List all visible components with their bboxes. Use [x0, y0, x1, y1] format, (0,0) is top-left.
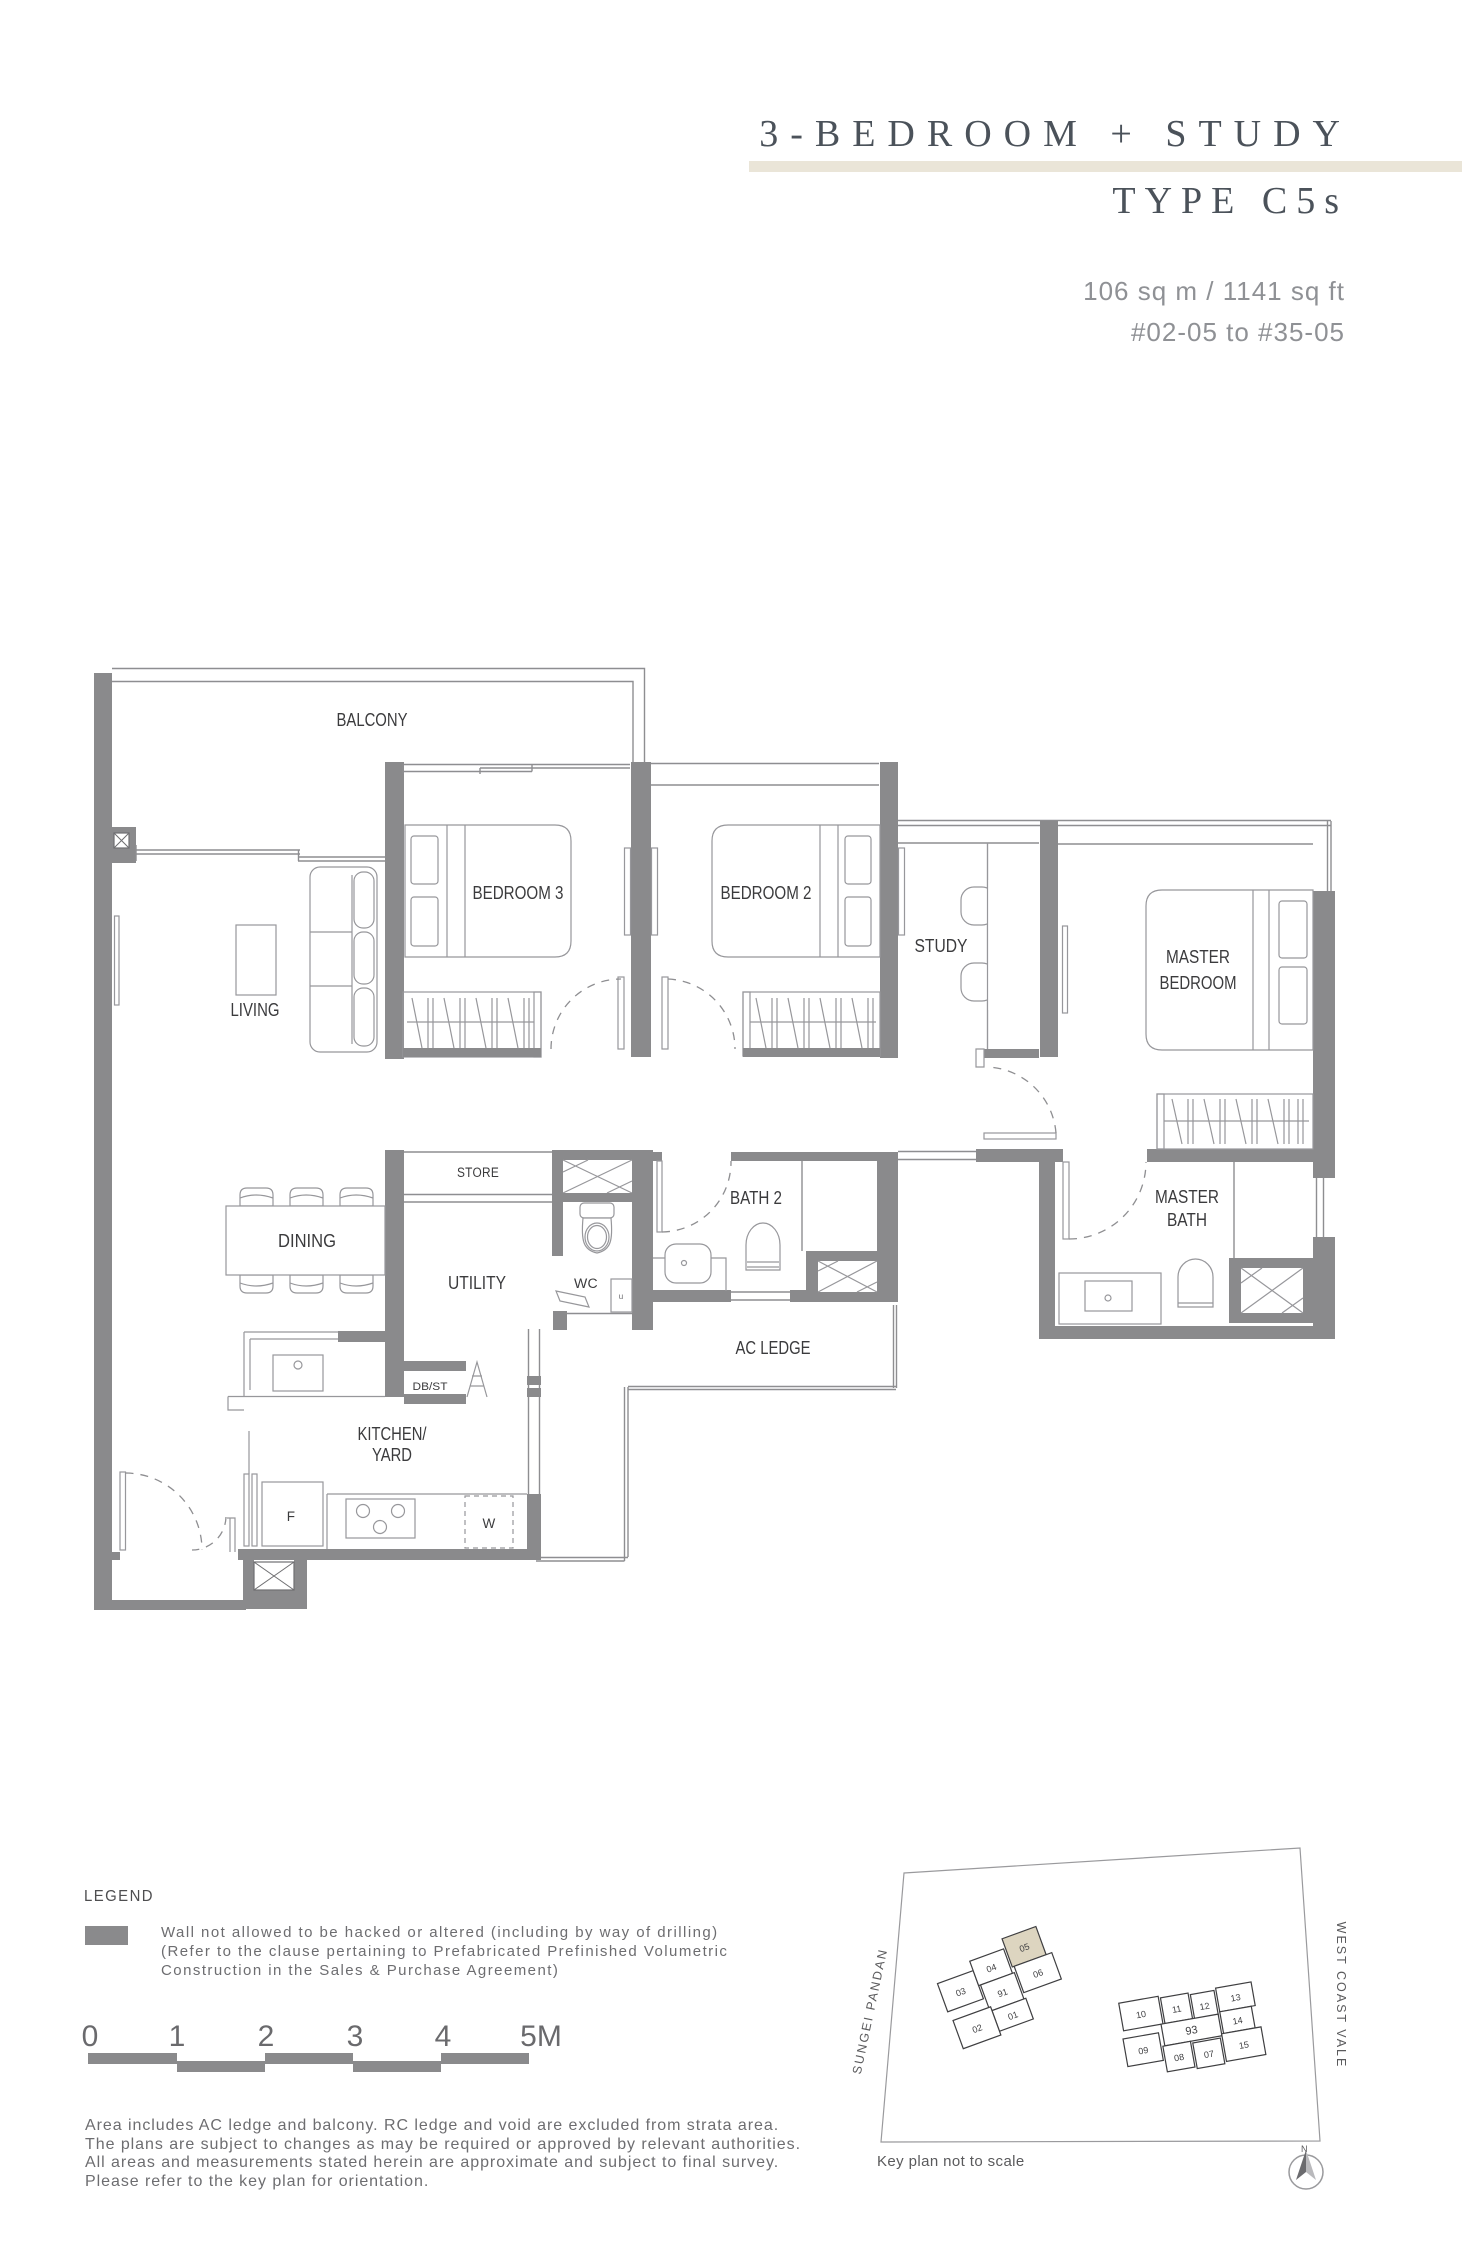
- svg-text:STORE: STORE: [457, 1165, 499, 1180]
- svg-text:(Refer to the clause pertainin: (Refer to the clause pertaining to Prefa…: [161, 1943, 728, 1960]
- svg-text:15: 15: [1238, 2039, 1250, 2051]
- svg-text:WC: WC: [574, 1276, 598, 1291]
- svg-text:1: 1: [169, 2020, 186, 2053]
- svg-text:UTILITY: UTILITY: [448, 1273, 506, 1293]
- svg-text:08: 08: [1173, 2052, 1185, 2064]
- svg-text:3-BEDROOM + STUDY: 3-BEDROOM + STUDY: [759, 113, 1352, 155]
- svg-text:3: 3: [347, 2020, 364, 2053]
- svg-text:14: 14: [1232, 2015, 1244, 2027]
- svg-text:TYPE C5s: TYPE C5s: [1112, 180, 1348, 222]
- svg-text:Construction in the Sales & Pu: Construction in the Sales & Purchase Agr…: [161, 1962, 559, 1979]
- svg-text:W: W: [482, 1516, 495, 1531]
- svg-text:All areas and measurements sta: All areas and measurements stated herein…: [85, 2154, 779, 2171]
- svg-text:13: 13: [1230, 1992, 1242, 2004]
- svg-text:The plans are subject to chang: The plans are subject to changes as may …: [85, 2136, 801, 2153]
- svg-text:MASTER: MASTER: [1166, 947, 1230, 967]
- svg-text:BEDROOM: BEDROOM: [1160, 973, 1237, 993]
- svg-text:DB/ST: DB/ST: [413, 1381, 448, 1393]
- svg-text:AC LEDGE: AC LEDGE: [736, 1338, 811, 1358]
- svg-text:Area includes AC ledge and bal: Area includes AC ledge and balcony. RC l…: [85, 2117, 779, 2134]
- svg-text:93: 93: [1185, 2024, 1199, 2038]
- svg-text:N: N: [1301, 2144, 1308, 2154]
- svg-text:KITCHEN/: KITCHEN/: [358, 1424, 427, 1444]
- svg-text:WEST COAST VALE: WEST COAST VALE: [1334, 1922, 1348, 2069]
- svg-text:#02-05 to #35-05: #02-05 to #35-05: [1131, 317, 1345, 347]
- svg-text:Key plan not to scale: Key plan not to scale: [877, 2153, 1025, 2170]
- svg-text:BATH: BATH: [1167, 1210, 1207, 1230]
- svg-text:MASTER: MASTER: [1155, 1187, 1219, 1207]
- svg-text:DINING: DINING: [278, 1231, 336, 1251]
- svg-text:11: 11: [1171, 2004, 1182, 2015]
- svg-text:106 sq m / 1141 sq ft: 106 sq m / 1141 sq ft: [1083, 276, 1345, 306]
- svg-text:YARD: YARD: [372, 1445, 412, 1465]
- svg-text:BALCONY: BALCONY: [337, 710, 408, 730]
- svg-text:BEDROOM 3: BEDROOM 3: [473, 883, 564, 903]
- svg-text:BATH 2: BATH 2: [730, 1188, 782, 1208]
- svg-text:STUDY: STUDY: [915, 936, 968, 956]
- svg-text:12: 12: [1199, 2001, 1211, 2013]
- svg-text:F: F: [287, 1509, 296, 1524]
- svg-text:LIVING: LIVING: [231, 1000, 280, 1020]
- svg-text:2: 2: [258, 2020, 275, 2053]
- svg-text:Please refer to the key plan f: Please refer to the key plan for orienta…: [85, 2173, 429, 2190]
- svg-text:5M: 5M: [520, 2020, 562, 2053]
- svg-text:09: 09: [1138, 2045, 1150, 2057]
- svg-text:10: 10: [1135, 2009, 1147, 2021]
- svg-text:07: 07: [1203, 2049, 1215, 2061]
- svg-text:LEGEND: LEGEND: [84, 1888, 154, 1905]
- svg-text:0: 0: [82, 2020, 99, 2053]
- svg-text:u: u: [619, 1292, 623, 1301]
- svg-text:Wall not allowed to be hacked: Wall not allowed to be hacked or altered…: [161, 1924, 719, 1941]
- svg-text:4: 4: [435, 2020, 452, 2053]
- svg-text:BEDROOM 2: BEDROOM 2: [721, 883, 812, 903]
